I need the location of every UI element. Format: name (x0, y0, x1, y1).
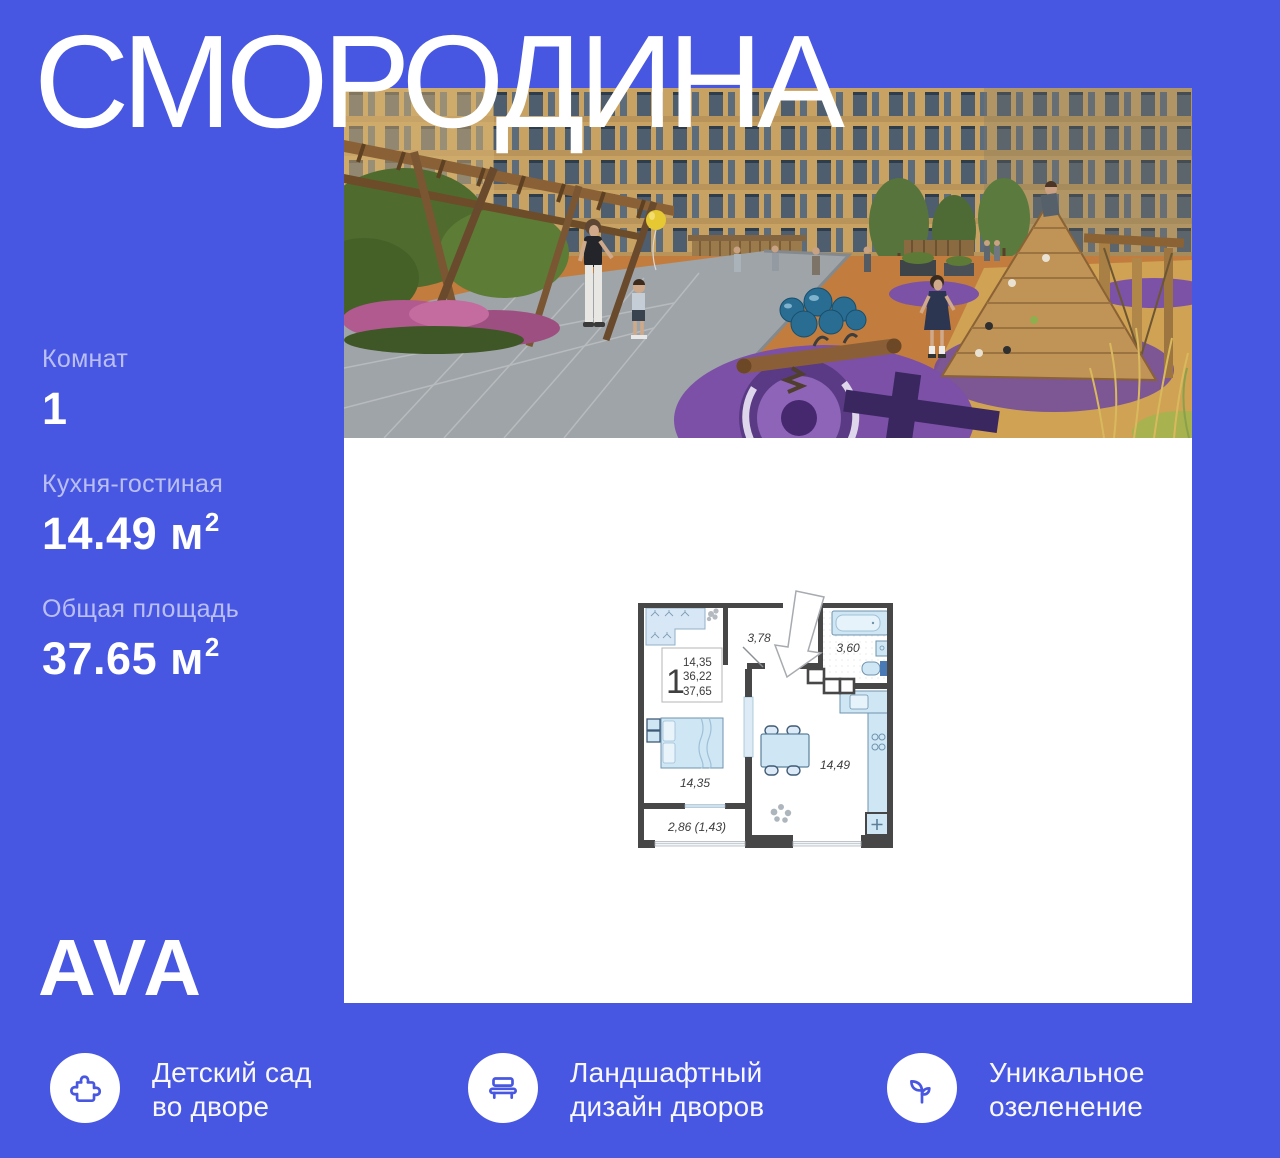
plan-info-box: 1 14,35 36,22 37,65 (662, 648, 722, 702)
plan-area-2: 36,22 (683, 671, 712, 683)
stat-total-area-label: Общая площадь (42, 595, 239, 624)
stat-kitchen-area-label: Кухня-гостиная (42, 470, 223, 499)
room-label-balcony: 2,86 (1,43) (667, 820, 726, 834)
stat-total-area-value: 37.65 м2 (42, 633, 239, 685)
room-label-bathroom: 3,60 (836, 641, 860, 655)
brand-logo: AVA (38, 928, 204, 1008)
feature-kindergarten-badge (50, 1053, 120, 1123)
project-title: СМОРОДИНА (34, 16, 839, 148)
bathtub (832, 611, 888, 635)
feature-greenery-badge (887, 1053, 957, 1123)
stat-rooms: Комнат 1 (42, 345, 128, 435)
feature-landscape-badge (468, 1053, 538, 1123)
stat-kitchen-area-value: 14.49 м2 (42, 508, 223, 560)
bench-icon (484, 1069, 522, 1107)
stat-total-area: Общая площадь 37.65 м2 (42, 595, 239, 685)
feature-greenery: Уникальное озеленение (887, 1053, 1145, 1124)
stat-rooms-value: 1 (42, 383, 128, 435)
sprout-icon (903, 1069, 941, 1107)
floor-plan: 1 14,35 36,22 37,65 3,78 3,60 14,35 14,4… (635, 585, 895, 855)
toilet (862, 661, 888, 676)
feature-landscape-design: Ландшафтный дизайн дворов (468, 1053, 764, 1124)
puzzle-icon (66, 1069, 104, 1107)
feature-landscape-text: Ландшафтный дизайн дворов (570, 1053, 764, 1124)
feature-greenery-text: Уникальное озеленение (989, 1053, 1145, 1124)
plan-area-1: 14,35 (683, 657, 712, 669)
plan-area-3: 37,65 (683, 686, 712, 698)
feature-kindergarten: Детский сад во дворе (50, 1053, 312, 1124)
bath-sink (876, 641, 888, 656)
room-label-bedroom: 14,35 (680, 776, 710, 790)
glass-door (744, 697, 753, 757)
stat-rooms-label: Комнат (42, 345, 128, 374)
feature-kindergarten-text: Детский сад во дворе (152, 1053, 312, 1124)
room-label-kitchen: 14,49 (820, 758, 850, 772)
floor-plan-panel: 1 14,35 36,22 37,65 3,78 3,60 14,35 14,4… (344, 438, 1192, 1003)
room-label-hallway: 3,78 (747, 631, 771, 645)
shaft-marker (866, 813, 888, 835)
stat-kitchen-area: Кухня-гостиная 14.49 м2 (42, 470, 223, 560)
